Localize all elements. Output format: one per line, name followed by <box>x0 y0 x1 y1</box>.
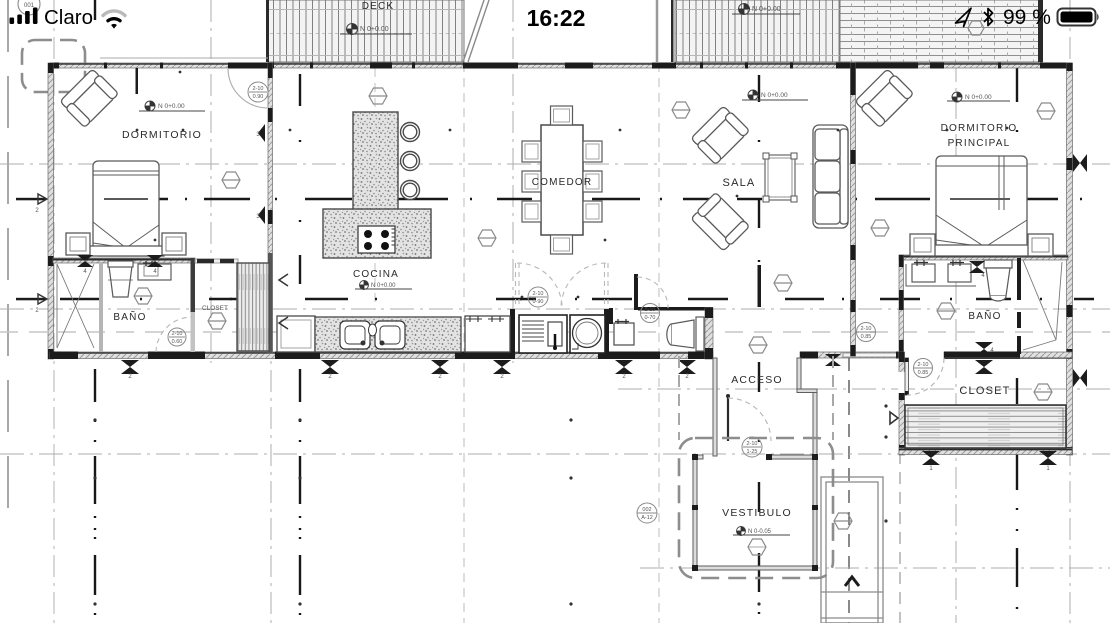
svg-text:2-10: 2-10 <box>644 307 655 313</box>
svg-text:N 0+0.00: N 0+0.00 <box>360 26 389 33</box>
svg-text:DECK: DECK <box>362 1 395 12</box>
svg-text:COCINA: COCINA <box>353 269 399 280</box>
svg-text:BAÑO: BAÑO <box>113 310 146 323</box>
svg-text:BAÑO: BAÑO <box>968 309 1001 322</box>
svg-text:0.85: 0.85 <box>918 370 929 376</box>
svg-text:Claro: Claro <box>44 6 93 29</box>
svg-text:1-25: 1-25 <box>746 449 757 455</box>
svg-text:2-10: 2-10 <box>746 441 757 447</box>
svg-text:PRINCIPAL: PRINCIPAL <box>948 138 1011 149</box>
svg-text:A-12: A-12 <box>641 515 653 521</box>
svg-text:N 0+0.00: N 0+0.00 <box>752 6 781 13</box>
svg-text:2-10: 2-10 <box>860 326 871 332</box>
svg-text:2-10: 2-10 <box>252 86 263 92</box>
svg-text:2-10: 2-10 <box>917 362 928 368</box>
svg-text:0-70: 0-70 <box>644 315 655 321</box>
svg-text:CLOSET: CLOSET <box>959 385 1010 397</box>
svg-text:99 %: 99 % <box>1003 6 1051 29</box>
svg-text:N 0+0.00: N 0+0.00 <box>761 92 788 99</box>
svg-text:2-10: 2-10 <box>532 291 543 297</box>
svg-text:SALA: SALA <box>723 177 756 189</box>
svg-text:N 0+0.00: N 0+0.00 <box>371 283 396 289</box>
svg-text:0.85: 0.85 <box>861 334 872 340</box>
svg-text:2-10: 2-10 <box>171 331 182 337</box>
svg-text:DORMITORIO: DORMITORIO <box>122 129 202 141</box>
svg-text:0.60: 0.60 <box>172 339 183 345</box>
svg-text:0.90: 0.90 <box>253 94 264 100</box>
svg-text:002: 002 <box>642 507 651 513</box>
svg-text:ACCESO: ACCESO <box>731 374 783 386</box>
svg-text:VESTIBULO: VESTIBULO <box>722 507 792 519</box>
svg-text:N 0-0.05: N 0-0.05 <box>748 529 772 535</box>
svg-text:N 0+0.00: N 0+0.00 <box>965 94 992 101</box>
svg-text:COMEDOR: COMEDOR <box>532 177 593 188</box>
svg-text:CLOSET: CLOSET <box>202 305 228 312</box>
svg-text:16:22: 16:22 <box>527 5 586 31</box>
svg-text:N 0+0.00: N 0+0.00 <box>158 103 185 110</box>
svg-text:0-90: 0-90 <box>532 299 543 305</box>
